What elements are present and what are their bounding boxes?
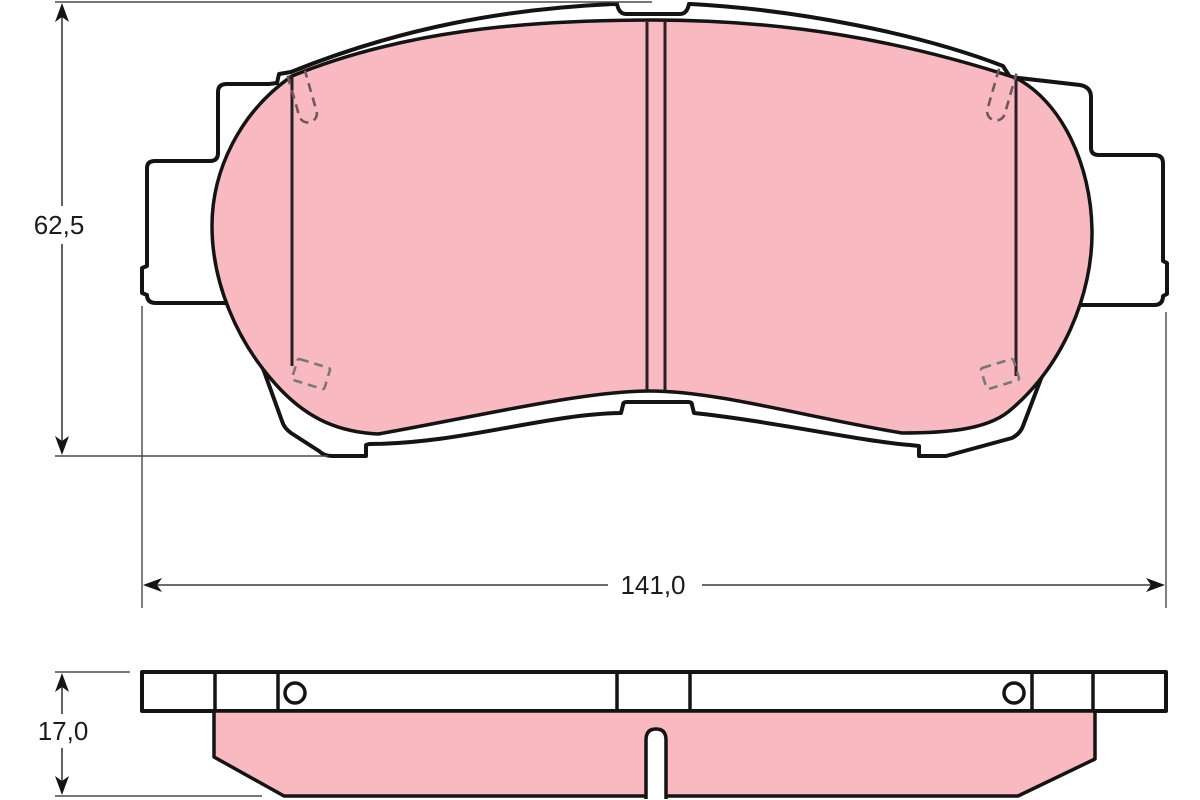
- technical-drawing-canvas: 62,5 141,0 17,0: [0, 0, 1200, 800]
- brake-pad-edge-view: [142, 672, 1166, 799]
- rivet-hole-right: [1004, 683, 1024, 703]
- brake-pad-drawing: 62,5 141,0 17,0: [0, 0, 1200, 800]
- groove-slot-edge: [646, 729, 666, 799]
- brake-pad-front-view: [142, 4, 1167, 456]
- height-dimension-label: 62,5: [34, 210, 85, 240]
- width-dimension-label: 141,0: [620, 570, 685, 600]
- rivet-hole-left: [285, 683, 305, 703]
- thickness-dimension-label: 17,0: [38, 716, 89, 746]
- friction-material: [212, 20, 1092, 434]
